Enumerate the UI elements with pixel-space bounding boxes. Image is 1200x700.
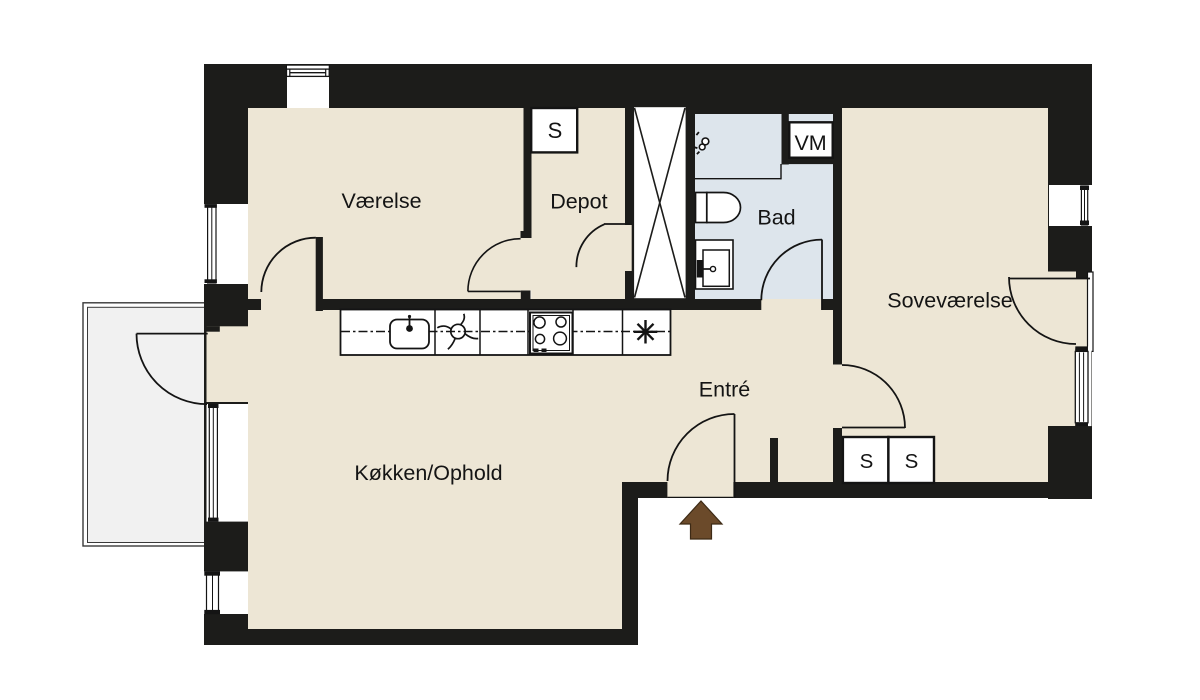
svg-text:Værelse: Værelse (341, 189, 421, 213)
svg-text:Entré: Entré (699, 378, 750, 402)
svg-text:S: S (905, 450, 919, 473)
svg-text:S: S (860, 450, 874, 473)
svg-text:Depot: Depot (550, 190, 607, 214)
svg-text:Bad: Bad (757, 206, 795, 230)
svg-text:S: S (548, 118, 563, 143)
svg-text:Køkken/Ophold: Køkken/Ophold (354, 461, 502, 485)
svg-text:Soveværelse: Soveværelse (887, 289, 1012, 313)
svg-text:VM: VM (794, 131, 826, 155)
